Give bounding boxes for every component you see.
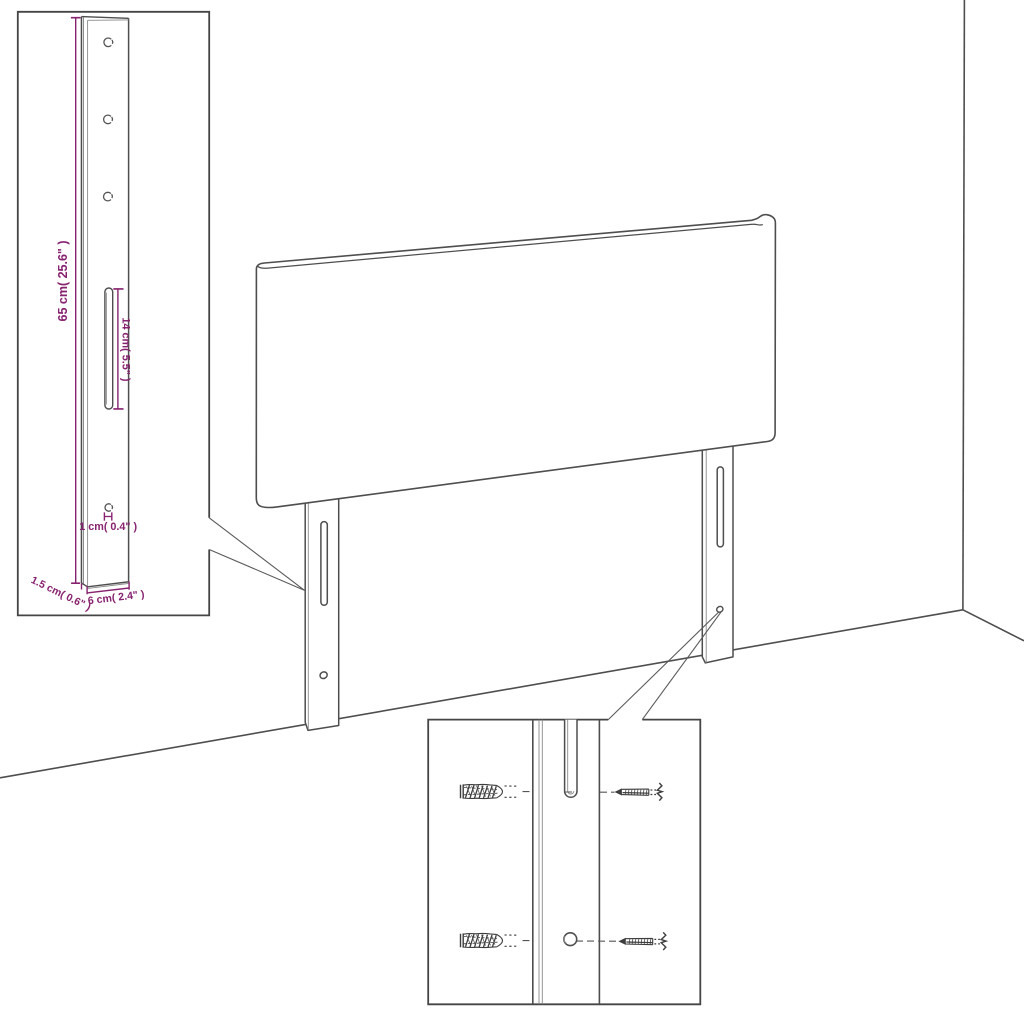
svg-text:1 cm( 0.4" ): 1 cm( 0.4" ) xyxy=(79,521,137,533)
svg-text:14 cm( 5.5" ): 14 cm( 5.5" ) xyxy=(120,318,132,382)
svg-text:65 cm( 25.6" ): 65 cm( 25.6" ) xyxy=(56,241,70,322)
